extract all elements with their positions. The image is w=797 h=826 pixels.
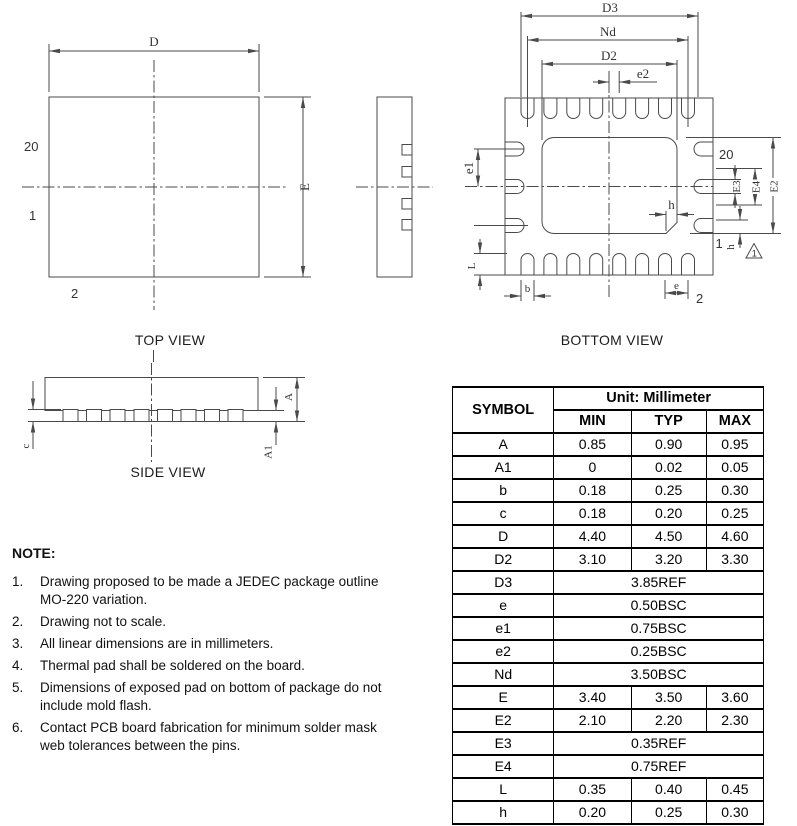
table-row: Nd 3.50BSC xyxy=(453,663,764,686)
min-cell: 4.40 xyxy=(554,525,631,548)
dim-extension-lines xyxy=(474,254,507,276)
min-cell: 3.40 xyxy=(554,686,631,709)
max-cell: 0.30 xyxy=(706,479,763,502)
symbol-cell: c xyxy=(453,502,554,525)
min-cell: 0.18 xyxy=(554,502,631,525)
typ-cell: 0.25 xyxy=(631,479,706,502)
dim-label-A: A xyxy=(283,393,295,401)
span-cell: 0.75BSC xyxy=(554,617,764,640)
max-cell: 0.45 xyxy=(706,778,763,801)
typ-cell: 0.02 xyxy=(631,456,706,479)
note-number: 4. xyxy=(12,657,40,675)
pin1-label: 1 xyxy=(716,236,723,251)
symbol-cell: e1 xyxy=(453,617,554,640)
min-cell: 0 xyxy=(554,456,631,479)
max-cell: 0.05 xyxy=(706,456,763,479)
pin2-label: 2 xyxy=(696,291,703,306)
top-view-title: TOP VIEW xyxy=(135,332,206,348)
max-header: MAX xyxy=(706,410,763,433)
table-row: D 4.40 4.50 4.60 xyxy=(453,525,764,548)
span-cell: 0.75REF xyxy=(554,755,764,778)
side-view: c A A1 SIDE VIEW xyxy=(20,363,305,480)
note-number: 2. xyxy=(12,613,40,631)
note-item: 4. Thermal pad shall be soldered on the … xyxy=(12,657,447,675)
table-row: e1 0.75BSC xyxy=(453,617,764,640)
bottom-view: D3 Nd D2 e2 e1 E3 E4 E2 xyxy=(461,0,781,348)
note-item: 6. Contact PCB board fabrication for min… xyxy=(12,719,447,755)
symbol-cell: A xyxy=(453,433,554,456)
symbol-cell: E xyxy=(453,686,554,709)
table-row: E4 0.75REF xyxy=(453,755,764,778)
max-cell: 0.25 xyxy=(706,502,763,525)
note-text: All linear dimensions are in millimeters… xyxy=(40,635,402,653)
symbol-cell: h xyxy=(453,801,554,824)
symbol-cell: E2 xyxy=(453,709,554,732)
max-cell: 3.60 xyxy=(706,686,763,709)
revision-number: 1 xyxy=(752,249,757,259)
dim-label-Nd: Nd xyxy=(600,24,616,39)
table-row: A1 0 0.02 0.05 xyxy=(453,456,764,479)
table-row: D2 3.10 3.20 3.30 xyxy=(453,548,764,571)
dim-label-D2: D2 xyxy=(601,48,617,63)
dim-label-D3: D3 xyxy=(602,0,618,15)
top-pin-slots xyxy=(521,99,695,119)
span-cell: 3.85REF xyxy=(554,571,764,594)
symbol-header: SYMBOL xyxy=(453,387,554,433)
table-row: e 0.50BSC xyxy=(453,594,764,617)
symbol-cell: D2 xyxy=(453,548,554,571)
note-text: Contact PCB board fabrication for minimu… xyxy=(40,719,402,755)
dim-label-b: b xyxy=(525,283,531,295)
typ-cell: 0.40 xyxy=(631,778,706,801)
span-cell: 0.50BSC xyxy=(554,594,764,617)
dim-label-E3: E3 xyxy=(731,180,743,193)
typ-cell: 3.50 xyxy=(631,686,706,709)
typ-cell: 4.50 xyxy=(631,525,706,548)
note-item: 3. All linear dimensions are in millimet… xyxy=(12,635,447,653)
note-text: Drawing not to scale. xyxy=(40,613,402,631)
min-header: MIN xyxy=(554,410,631,433)
dim-label-E: E xyxy=(297,183,312,191)
side-view-pins xyxy=(63,410,243,422)
span-cell: 3.50BSC xyxy=(554,663,764,686)
top-view: D E 20 1 2 TOP VIEW xyxy=(22,34,312,362)
note-item: 5. Dimensions of exposed pad on bottom o… xyxy=(12,679,447,715)
table-row: D3 3.85REF xyxy=(453,571,764,594)
symbol-cell: Nd xyxy=(453,663,554,686)
dim-label-h: h xyxy=(668,197,675,212)
dim-label-A1: A1 xyxy=(263,445,275,458)
profile-view xyxy=(356,97,433,277)
table-row: b 0.18 0.25 0.30 xyxy=(453,479,764,502)
right-side-pins xyxy=(694,142,713,233)
dim-label-c: c xyxy=(20,443,32,448)
pin2-label: 2 xyxy=(71,286,78,301)
dim-label-e1: e1 xyxy=(461,162,476,174)
dimension-table: SYMBOL Unit: Millimeter MIN TYP MAX A 0.… xyxy=(452,386,764,825)
dim-extension-lines xyxy=(258,378,305,422)
symbol-cell: D xyxy=(453,525,554,548)
note-text: Dimensions of exposed pad on bottom of p… xyxy=(40,679,402,715)
dim-label-E4: E4 xyxy=(751,180,763,193)
note-number: 3. xyxy=(12,635,40,653)
pin20-label: 20 xyxy=(24,139,38,154)
typ-cell: 0.20 xyxy=(631,502,706,525)
side-view-title: SIDE VIEW xyxy=(130,464,206,480)
symbol-cell: b xyxy=(453,479,554,502)
unit-header: Unit: Millimeter xyxy=(554,387,764,410)
dim-label-L: L xyxy=(466,262,478,269)
pin1-label: 1 xyxy=(29,208,36,223)
min-cell: 0.35 xyxy=(554,778,631,801)
dim-extension-lines xyxy=(609,71,619,93)
min-cell: 3.10 xyxy=(554,548,631,571)
symbol-cell: e2 xyxy=(453,640,554,663)
note-text: Drawing proposed to be made a JEDEC pack… xyxy=(40,573,402,609)
table-row: E 3.40 3.50 3.60 xyxy=(453,686,764,709)
min-cell: 0.20 xyxy=(554,801,631,824)
notes-section: NOTE: 1. Drawing proposed to be made a J… xyxy=(12,545,447,759)
symbol-cell: D3 xyxy=(453,571,554,594)
note-item: 1. Drawing proposed to be made a JEDEC p… xyxy=(12,573,447,609)
pin20-label: 20 xyxy=(719,147,733,162)
package-outline-drawing: D E 20 1 2 TOP VIEW xyxy=(0,0,797,826)
table-row: c 0.18 0.20 0.25 xyxy=(453,502,764,525)
symbol-cell: A1 xyxy=(453,456,554,479)
note-number: 5. xyxy=(12,679,40,715)
table-row: E3 0.35REF xyxy=(453,732,764,755)
notes-heading: NOTE: xyxy=(12,545,447,561)
typ-header: TYP xyxy=(631,410,706,433)
max-cell: 4.60 xyxy=(706,525,763,548)
max-cell: 3.30 xyxy=(706,548,763,571)
max-cell: 0.30 xyxy=(706,801,763,824)
note-item: 2. Drawing not to scale. xyxy=(12,613,447,631)
max-cell: 0.95 xyxy=(706,433,763,456)
max-cell: 2.30 xyxy=(706,709,763,732)
note-text: Thermal pad shall be soldered on the boa… xyxy=(40,657,402,675)
typ-cell: 2.20 xyxy=(631,709,706,732)
typ-cell: 3.20 xyxy=(631,548,706,571)
dim-label-E2: E2 xyxy=(769,180,781,192)
note-number: 6. xyxy=(12,719,40,755)
span-cell: 0.35REF xyxy=(554,732,764,755)
dim-label-e: e xyxy=(674,280,679,292)
symbol-cell: E4 xyxy=(453,755,554,778)
symbol-cell: L xyxy=(453,778,554,801)
table-row: L 0.35 0.40 0.45 xyxy=(453,778,764,801)
typ-cell: 0.90 xyxy=(631,433,706,456)
note-number: 1. xyxy=(12,573,40,609)
dim-label-h-side: h xyxy=(725,244,737,250)
bottom-view-title: BOTTOM VIEW xyxy=(561,332,664,348)
dim-label-e2: e2 xyxy=(637,66,649,81)
bottom-pin-slots xyxy=(521,254,695,275)
span-cell: 0.25BSC xyxy=(554,640,764,663)
table-row: E2 2.10 2.20 2.30 xyxy=(453,709,764,732)
min-cell: 0.85 xyxy=(554,433,631,456)
dim-label-D: D xyxy=(149,34,158,49)
typ-cell: 0.25 xyxy=(631,801,706,824)
left-side-pins xyxy=(505,142,524,233)
table-row: e2 0.25BSC xyxy=(453,640,764,663)
symbol-cell: e xyxy=(453,594,554,617)
dim-extension-lines xyxy=(28,410,61,422)
table-row: h 0.20 0.25 0.30 xyxy=(453,801,764,824)
symbol-cell: E3 xyxy=(453,732,554,755)
table-row: A 0.85 0.90 0.95 xyxy=(453,433,764,456)
min-cell: 2.10 xyxy=(554,709,631,732)
min-cell: 0.18 xyxy=(554,479,631,502)
